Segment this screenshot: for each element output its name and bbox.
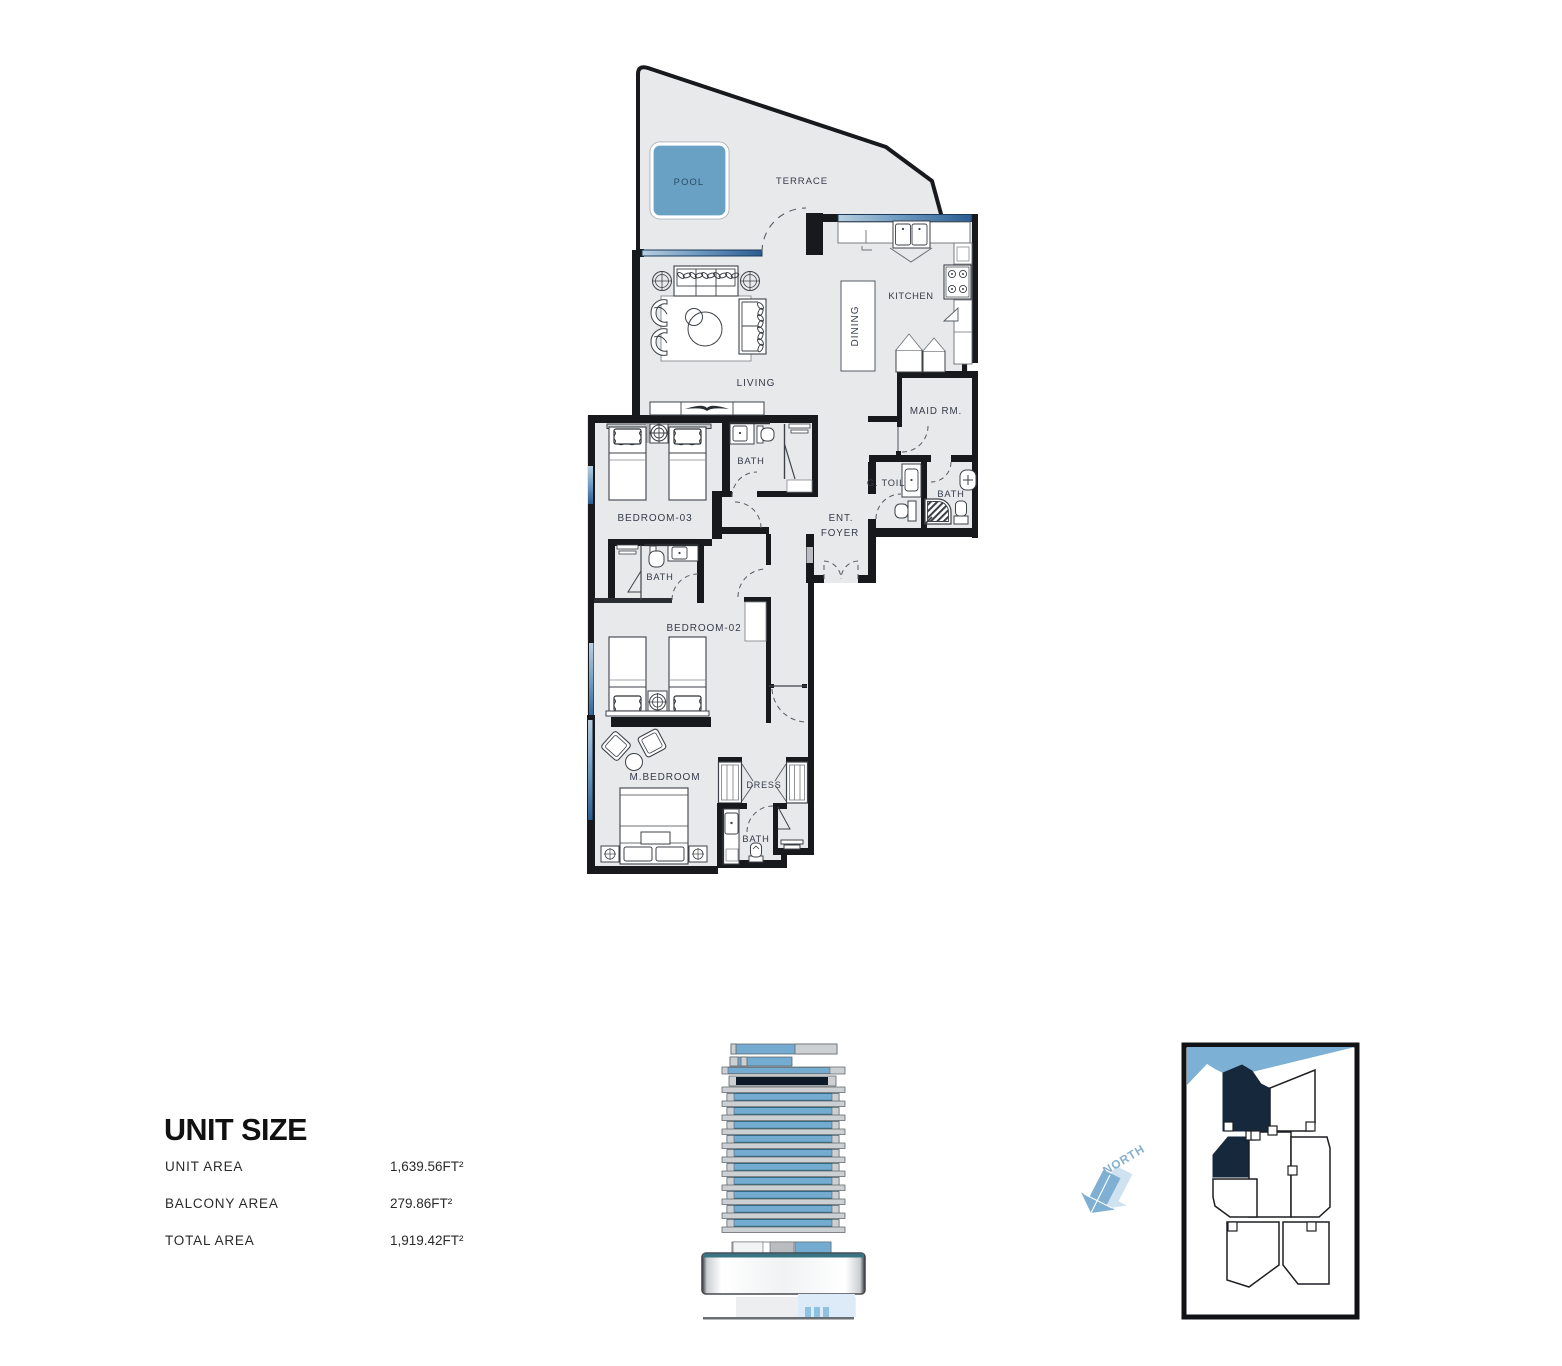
svg-text:BATH: BATH [737,456,764,466]
svg-text:MAID RM.: MAID RM. [910,406,962,417]
svg-text:BEDROOM-02: BEDROOM-02 [666,623,741,634]
svg-text:BATH: BATH [646,572,673,582]
svg-text:BEDROOM-03: BEDROOM-03 [617,513,692,524]
svg-text:DRESS: DRESS [746,780,781,790]
svg-text:BALCONY AREA: BALCONY AREA [165,1196,279,1211]
svg-text:TERRACE: TERRACE [776,176,828,187]
svg-text:BATH: BATH [937,489,964,499]
svg-text:1,919.42FT²: 1,919.42FT² [390,1233,464,1248]
svg-text:1,639.56FT²: 1,639.56FT² [390,1159,464,1174]
svg-text:TOTAL AREA: TOTAL AREA [165,1233,255,1248]
svg-text:LIVING: LIVING [737,378,776,389]
svg-text:G. TOIL: G. TOIL [867,478,905,488]
svg-text:M.BEDROOM: M.BEDROOM [630,772,701,783]
svg-text:UNIT AREA: UNIT AREA [165,1159,243,1174]
svg-text:KITCHEN: KITCHEN [888,290,933,301]
svg-text:FOYER: FOYER [821,528,859,539]
svg-text:279.86FT²: 279.86FT² [390,1196,453,1211]
svg-text:UNIT SIZE: UNIT SIZE [164,1113,307,1147]
svg-text:ENT.: ENT. [829,513,854,524]
svg-text:DINING: DINING [850,306,861,347]
svg-text:POOL: POOL [674,177,705,187]
